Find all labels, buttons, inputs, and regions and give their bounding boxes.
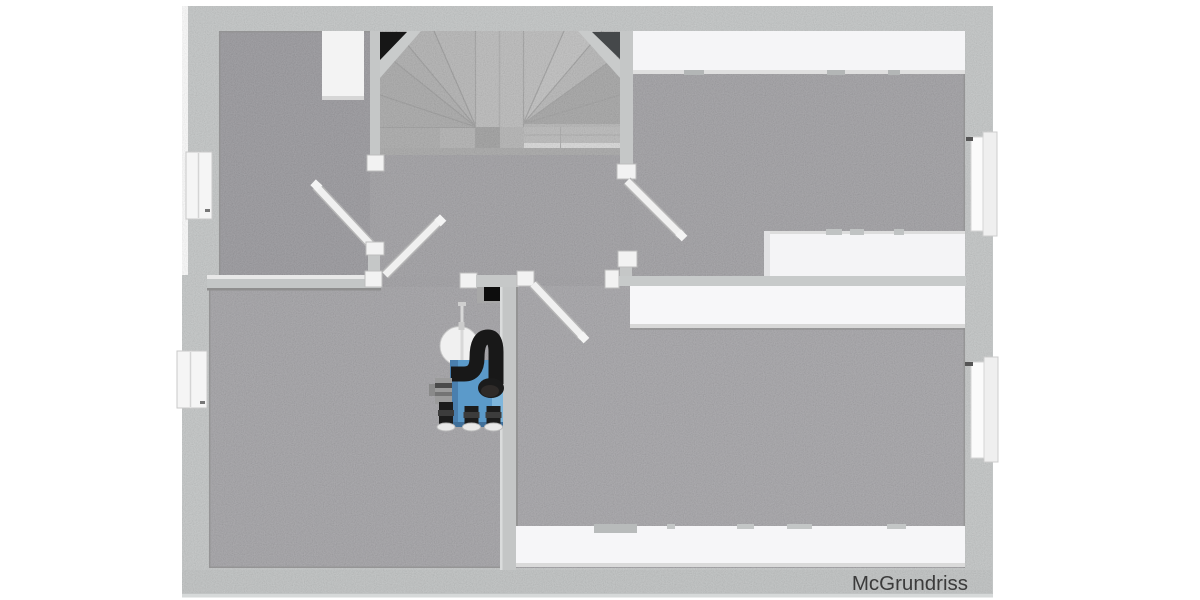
svg-text:McGrundriss: McGrundriss (852, 572, 968, 595)
